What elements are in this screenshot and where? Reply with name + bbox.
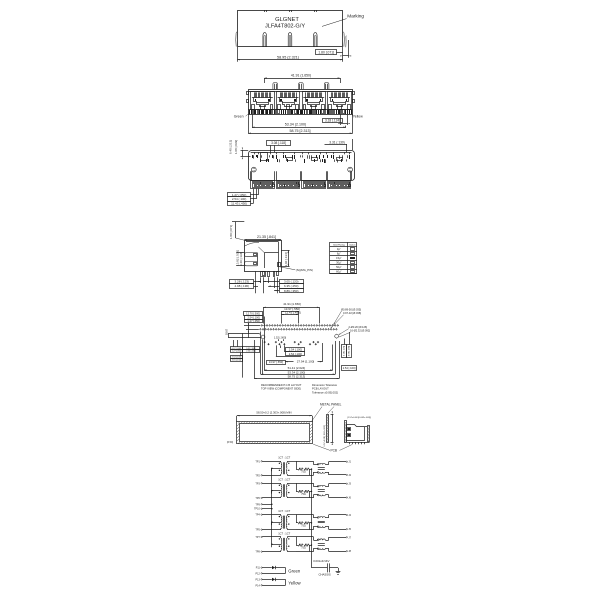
svg-text:12.70 [.500]: 12.70 [.500] bbox=[246, 312, 260, 316]
svg-text:1.27 [.050]: 1.27 [.050] bbox=[232, 351, 242, 353]
svg-text:(6.50): (6.50) bbox=[227, 441, 233, 444]
svg-text:Yellow: Yellow bbox=[288, 580, 301, 585]
svg-text:2.54 [.100]: 2.54 [.100] bbox=[343, 366, 356, 370]
svg-text:3.31 (.130): 3.31 (.130) bbox=[329, 140, 344, 144]
svg-text:1.57±0.08 [.062±.003]: 1.57±0.08 [.062±.003] bbox=[324, 425, 326, 447]
svg-text:Marking: Marking bbox=[347, 14, 364, 19]
svg-text:METAL PANEL: METAL PANEL bbox=[320, 403, 342, 407]
svg-text:41.91 (1.650): 41.91 (1.650) bbox=[291, 73, 311, 77]
svg-text:53.34 (2.100): 53.34 (2.100) bbox=[285, 123, 306, 127]
svg-text:J7: J7 bbox=[348, 536, 351, 539]
svg-text:Ø0.89-50 [Ø.035]: Ø0.89-50 [Ø.035] bbox=[341, 307, 361, 311]
svg-text:60µ": 60µ" bbox=[336, 270, 341, 274]
svg-text:TP7: TP7 bbox=[255, 536, 260, 539]
svg-text:(1.57±0.08 [0.062±.003]): (1.57±0.08 [0.062±.003]) bbox=[347, 417, 371, 419]
svg-text:3.18 [.124]: 3.18 [.124] bbox=[325, 119, 340, 123]
svg-text:15µ": 15µ" bbox=[336, 256, 341, 260]
svg-text:6.35 (.250): 6.35 (.250) bbox=[284, 284, 299, 288]
svg-text:PCB: PCB bbox=[331, 449, 338, 453]
svg-text:TOP VIEW (COMPONENT SIDE): TOP VIEW (COMPONENT SIDE) bbox=[261, 387, 301, 391]
svg-text:TP5: TP5 bbox=[255, 529, 260, 532]
svg-text:41.91 [1.650]: 41.91 [1.650] bbox=[283, 302, 301, 306]
svg-text:Green: Green bbox=[288, 569, 301, 574]
svg-text:J6: J6 bbox=[348, 497, 351, 500]
svg-text:3.08 [.118]: 3.08 [.118] bbox=[271, 141, 286, 145]
svg-text:1CT : 1CT: 1CT : 1CT bbox=[278, 531, 290, 535]
svg-text:Green: Green bbox=[234, 114, 244, 118]
svg-text:8.89 (.350): 8.89 (.350) bbox=[284, 289, 299, 293]
svg-text:16-Ø2.32 [Ø.092]: 16-Ø2.32 [Ø.092] bbox=[350, 329, 370, 333]
svg-text:58.75 [2.313]: 58.75 [2.313] bbox=[288, 375, 306, 379]
svg-text:Gold Plating: Gold Plating bbox=[333, 244, 346, 247]
svg-text:TP6: TP6 bbox=[255, 497, 260, 500]
svg-text:GLGNET: GLGNET bbox=[275, 17, 299, 23]
svg-text:21.35 [.841]: 21.35 [.841] bbox=[257, 235, 276, 239]
svg-text:75Ω: 75Ω bbox=[301, 471, 306, 474]
svg-text:JLFA4T802-G/Y: JLFA4T802-G/Y bbox=[265, 24, 305, 30]
svg-text:2.54 [.100]: 2.54 [.100] bbox=[289, 352, 302, 356]
svg-text:Dimension Tolerance: Dimension Tolerance bbox=[312, 383, 338, 387]
svg-text:J2: J2 bbox=[348, 474, 351, 477]
svg-text:1.80 [.071]: 1.80 [.071] bbox=[229, 225, 233, 239]
svg-text:(SQ/MA_PIN): (SQ/MA_PIN) bbox=[296, 268, 313, 272]
svg-text:75Ω: 75Ω bbox=[301, 525, 306, 528]
svg-text:P11: P11 bbox=[256, 567, 261, 570]
svg-text:0.001uF/1KV: 0.001uF/1KV bbox=[313, 559, 329, 563]
svg-text:75Ω: 75Ω bbox=[301, 493, 306, 496]
svg-text:3.18 [.125]: 3.18 [.125] bbox=[344, 345, 346, 356]
svg-text:3µ": 3µ" bbox=[337, 247, 341, 251]
svg-text:P13: P13 bbox=[256, 578, 261, 581]
svg-text:50µ": 50µ" bbox=[336, 265, 341, 269]
svg-text:27.94 [1.100]: 27.94 [1.100] bbox=[297, 359, 315, 363]
svg-text:13.97 [.550]: 13.97 [.550] bbox=[269, 360, 283, 364]
svg-text:J3: J3 bbox=[348, 483, 351, 486]
svg-text:3.28 (.123): 3.28 (.123) bbox=[235, 280, 250, 284]
svg-text:4.98 (.196): 4.98 (.196) bbox=[235, 284, 250, 288]
svg-text:RECOMMENDED P.C.B LAYOUT: RECOMMENDED P.C.B LAYOUT bbox=[261, 383, 302, 387]
svg-text:1.08 [.039]: 1.08 [.039] bbox=[234, 140, 238, 154]
svg-text:1.80 [.071]: 1.80 [.071] bbox=[318, 51, 334, 55]
svg-text:TP4: TP4 bbox=[255, 514, 260, 517]
svg-text:58.95 (2.321): 58.95 (2.321) bbox=[277, 55, 299, 59]
svg-text:Tolerance ±0.05[.002]: Tolerance ±0.05[.002] bbox=[312, 390, 338, 394]
svg-text:4.98 [.196]: 4.98 [.196] bbox=[349, 345, 351, 356]
svg-text:58.75 [2.313]: 58.75 [2.313] bbox=[290, 129, 311, 133]
svg-text:2-Ø3.20 [Ø.126]: 2-Ø3.20 [Ø.126] bbox=[349, 325, 368, 329]
svg-text:1CT : 1CT: 1CT : 1CT bbox=[278, 455, 290, 459]
svg-text:1CT : 1CT: 1CT : 1CT bbox=[278, 478, 290, 482]
svg-text:58.50+0.2 (2.303+.008) MIN: 58.50+0.2 (2.303+.008) MIN bbox=[256, 411, 291, 415]
svg-text:P12: P12 bbox=[256, 572, 261, 575]
svg-text:TP2: TP2 bbox=[255, 474, 260, 477]
svg-text:3.05 (.120): 3.05 (.120) bbox=[284, 280, 299, 284]
svg-text:P14: P14 bbox=[256, 584, 261, 587]
svg-text:TP1: TP1 bbox=[255, 460, 260, 463]
svg-text:3.40 [.134]: 3.40 [.134] bbox=[239, 252, 243, 266]
svg-text:11.43 (.450): 11.43 (.450) bbox=[231, 201, 247, 205]
svg-text:Yellow: Yellow bbox=[353, 114, 363, 118]
svg-text:TP9: TP9 bbox=[255, 503, 260, 506]
svg-text:1.52 [.060]: 1.52 [.060] bbox=[274, 335, 287, 339]
svg-text:J4: J4 bbox=[348, 514, 351, 517]
svg-text:2.54 [.100]: 2.54 [.100] bbox=[248, 315, 261, 319]
svg-text:1CT : 1CT: 1CT : 1CT bbox=[278, 509, 290, 513]
svg-text:1.27 [.050]: 1.27 [.050] bbox=[248, 319, 261, 323]
svg-text:Option: Option bbox=[349, 244, 356, 247]
svg-text:6.40 [.213]: 6.40 [.213] bbox=[229, 140, 233, 154]
svg-text:J1: J1 bbox=[348, 461, 351, 464]
svg-text:TP10: TP10 bbox=[254, 508, 260, 511]
svg-text:CHASSIS: CHASSIS bbox=[319, 573, 331, 577]
svg-text:3.81 [.150]: 3.81 [.150] bbox=[232, 360, 242, 362]
svg-text:0.97-32 [Ø.038]: 0.97-32 [Ø.038] bbox=[343, 311, 361, 315]
svg-text:J8: J8 bbox=[348, 550, 351, 553]
svg-text:30µ": 30µ" bbox=[336, 261, 341, 265]
svg-text:TP3: TP3 bbox=[255, 482, 260, 485]
svg-text:J5: J5 bbox=[348, 528, 351, 531]
svg-text:75Ω: 75Ω bbox=[301, 547, 306, 550]
svg-text:3.40 [.134]: 3.40 [.134] bbox=[284, 252, 288, 266]
svg-text:6µ": 6µ" bbox=[337, 252, 341, 256]
svg-text:PCB LAYOUT: PCB LAYOUT bbox=[312, 387, 329, 391]
svg-text:TP8: TP8 bbox=[255, 551, 260, 554]
